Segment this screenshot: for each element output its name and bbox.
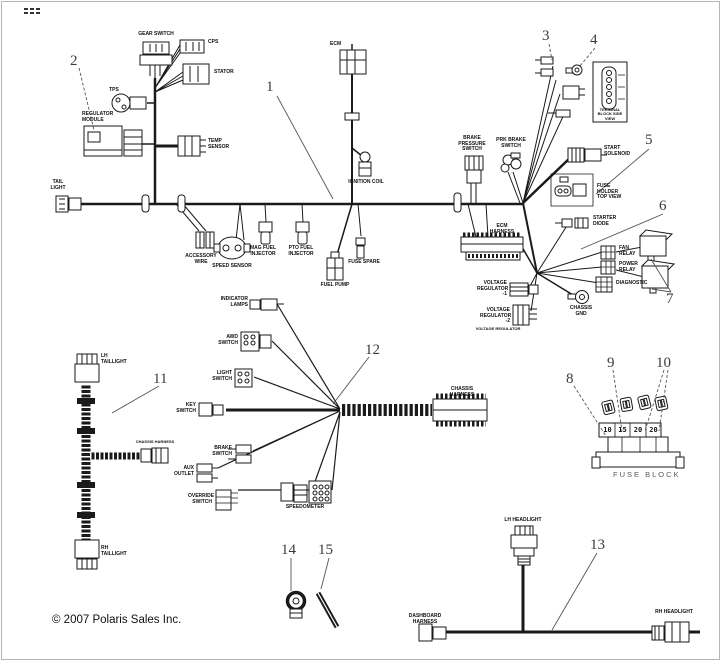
terminal-block-label: TERMINAL BLOCK SIDE VIEW — [594, 108, 626, 121]
callout-13: 13 — [590, 538, 605, 553]
voltage-regulator-2-connector — [513, 305, 537, 325]
fuse-value-1: 10 — [600, 426, 615, 434]
speed-sensor-label: SPEED SENSOR — [212, 264, 252, 270]
indicator-lamps-label: INDICATOR LAMPS — [220, 297, 248, 308]
fan-relay-label: FAN RELAY — [619, 246, 639, 257]
callout-15: 15 — [318, 543, 333, 558]
callout-4: 4 — [590, 33, 598, 48]
voltage-regulator-1-label: VOLTAGE REGULATOR -1 — [477, 281, 507, 298]
awd-switch-label: AWD SWITCH — [216, 335, 238, 346]
light-switch-label: LIGHT SWITCH — [208, 371, 232, 382]
cps-connector — [180, 40, 204, 53]
callout-9: 9 — [607, 356, 615, 371]
brake-switch-label: BRAKE SWITCH — [210, 446, 232, 457]
main-harness-wires — [75, 45, 644, 311]
callout-10: 10 — [656, 356, 671, 371]
dash-harness — [197, 299, 487, 510]
callout-6: 6 — [659, 199, 667, 214]
voltage-regulator-2-label: VOLTAGE REGULATOR -2 — [480, 308, 510, 325]
tail-light-label: TAIL LIGHT — [46, 180, 70, 191]
ecm-connector — [340, 44, 366, 74]
fuse-spare-part — [356, 238, 365, 258]
copyright-text: © 2007 Polaris Sales Inc. — [52, 614, 181, 626]
voltage-regulator-1-connector — [510, 283, 538, 296]
pto-fuel-injector-connector — [296, 222, 309, 244]
regulator-module — [84, 126, 142, 156]
headlight-harness — [419, 526, 700, 642]
tps-sensor — [112, 94, 146, 112]
ecm-label: ECM — [330, 42, 346, 48]
gear-switch-connector — [140, 42, 172, 78]
fuse-value-3: 20 — [630, 426, 646, 434]
fuse-value-2: 15 — [615, 426, 630, 434]
temp-sensor-connector — [178, 136, 206, 156]
mag-fuel-injector-label: MAG FUEL INJECTOR — [248, 246, 278, 257]
fuel-pump-label: FUEL PUMP — [318, 283, 352, 289]
callout-leaders — [79, 44, 671, 630]
fan-relay-connector — [601, 246, 615, 259]
callout-14: 14 — [281, 543, 296, 558]
pto-fuel-injector-label: PTO FUEL INJECTOR — [286, 246, 316, 257]
start-solenoid-label: START SOLENOID — [604, 146, 634, 157]
rh-headlight-label: RH HEADLIGHT — [654, 610, 694, 616]
ignition-coil — [359, 152, 371, 176]
starter-diode-label: STARTER DIODE — [593, 216, 619, 227]
callout-1: 1 — [266, 80, 274, 95]
fuse-spare-label: FUSE SPARE — [346, 260, 382, 266]
lh-headlight-label: LH HEADLIGHT — [498, 518, 548, 524]
callout-11: 11 — [153, 372, 167, 387]
diagnostic-label: DIAGNOSTIC — [616, 281, 648, 287]
park-brake-switch — [501, 153, 521, 172]
wiring-diagram-svg — [0, 0, 721, 661]
tail-light-connector — [56, 196, 81, 212]
chassis-harness-main-label: CHASSIS HARNESS — [446, 387, 478, 398]
callout-3: 3 — [542, 29, 550, 44]
callout-7: 7 — [666, 292, 674, 307]
corner-registration-mark — [24, 8, 40, 14]
ignition-coil-label: IGNITION COIL — [344, 180, 388, 186]
mag-fuel-injector-connector — [259, 222, 272, 244]
gear-switch-label: GEAR SWITCH — [138, 32, 174, 38]
fuse-value-4: 20 — [646, 426, 661, 434]
tps-label: TPS — [106, 88, 122, 94]
ecm-harness-connector — [461, 235, 523, 260]
callout-5: 5 — [645, 133, 653, 148]
stator-connector — [183, 64, 209, 84]
park-brake-switch-label: PRK BRAKE SWITCH — [494, 138, 528, 149]
wiring-diagram-page: 1 2 3 4 5 6 7 8 9 10 11 12 13 14 15 GEAR… — [0, 0, 721, 661]
cps-label: CPS — [208, 40, 224, 46]
chassis-ground-label: CHASSIS GND — [566, 306, 596, 317]
ecm-harness-label: ECM HARNESS — [484, 224, 520, 235]
temp-sensor-label: TEMP SENSOR — [208, 139, 232, 150]
power-relay-connector — [601, 261, 615, 274]
power-relay-label: POWER RELAY — [619, 262, 639, 273]
fuse-holder — [551, 174, 593, 206]
callout-12: 12 — [365, 343, 380, 358]
rh-taillight-label: RH TAILLIGHT — [101, 546, 125, 557]
diagnostic-connector — [596, 277, 612, 292]
cable-tie-part — [318, 593, 337, 627]
dashboard-harness-label: DASHBOARD HARNESS — [405, 614, 445, 625]
battery-terminals — [541, 57, 585, 117]
voltage-regulator-note: VOLTAGE REGULATOR — [466, 327, 530, 331]
brake-pressure-switch-label: BRAKE PRESSURE SWITCH — [456, 136, 488, 153]
chassis-ground-ring — [568, 291, 589, 304]
fuse-holder-label: FUSE HOLDER TOP VIEW — [597, 184, 625, 201]
brake-pressure-switch — [465, 156, 483, 183]
callout-2: 2 — [70, 54, 78, 69]
regulator-module-label: REGULATOR MODULE — [82, 112, 116, 123]
accessory-wire-connectors — [196, 232, 214, 248]
stator-label: STATOR — [214, 70, 236, 76]
aux-outlet-label: AUX OUTLET — [174, 466, 194, 477]
fuse-block-title: FUSE BLOCK — [613, 470, 681, 479]
starter-diode-connectors — [562, 218, 588, 228]
key-switch-label: KEY SWITCH — [172, 403, 196, 414]
speedometer-label: SPEEDOMETER — [278, 505, 332, 511]
grommet-part — [288, 593, 305, 619]
fuel-pump-connector — [327, 252, 343, 280]
chassis-harness-branch-label: CHASSIS HARNESS — [132, 440, 178, 444]
callout-8: 8 — [566, 372, 574, 387]
start-solenoid — [568, 148, 607, 162]
override-switch-label: OVERRIDE SWITCH — [188, 494, 212, 505]
lh-taillight-label: LH TAILLIGHT — [101, 354, 125, 365]
